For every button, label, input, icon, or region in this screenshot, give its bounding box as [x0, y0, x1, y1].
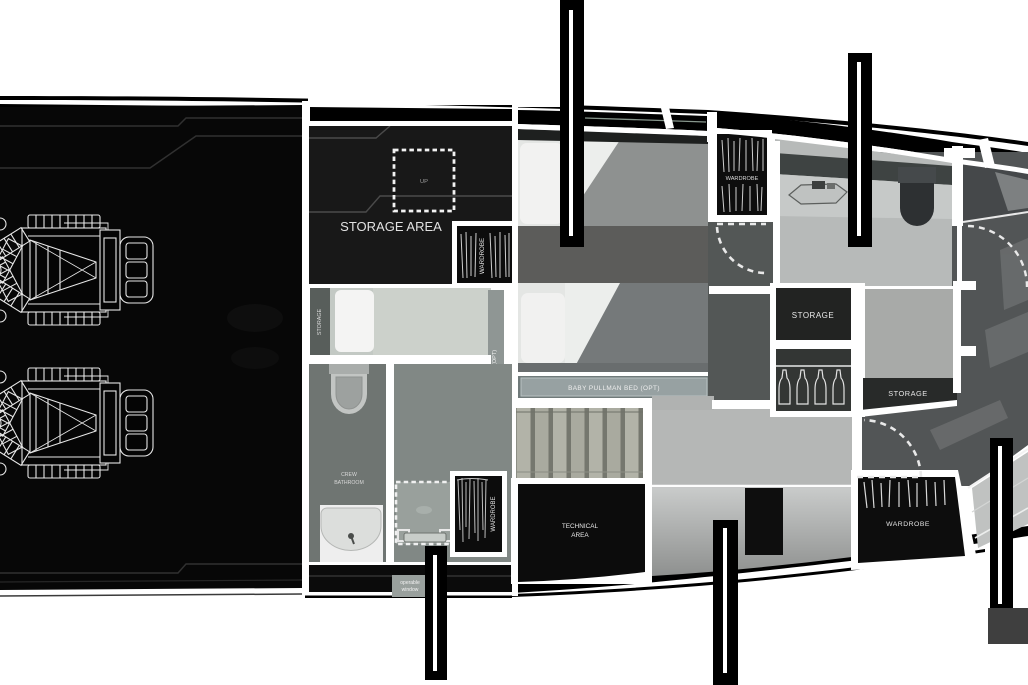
- svg-text:WARDROBE: WARDROBE: [491, 496, 497, 531]
- svg-text:BABY PULLMAN BED (OPT): BABY PULLMAN BED (OPT): [568, 385, 660, 392]
- svg-text:WARDROBE: WARDROBE: [886, 521, 930, 528]
- svg-text:STORAGE: STORAGE: [792, 311, 834, 320]
- svg-text:WARDROBE: WARDROBE: [479, 238, 486, 274]
- svg-text:UP: UP: [420, 179, 428, 185]
- svg-text:operable: operable: [400, 580, 420, 586]
- svg-text:CREW: CREW: [341, 472, 357, 478]
- svg-text:STORAGE: STORAGE: [888, 389, 928, 398]
- svg-text:window: window: [402, 587, 419, 593]
- svg-text:STORAGE AREA: STORAGE AREA: [340, 219, 442, 234]
- svg-text:AREA: AREA: [571, 532, 589, 539]
- svg-text:TECHNICAL: TECHNICAL: [562, 523, 599, 530]
- svg-text:WARDROBE: WARDROBE: [726, 176, 759, 182]
- svg-text:BATHROOM: BATHROOM: [334, 480, 364, 486]
- svg-text:STORAGE: STORAGE: [317, 308, 323, 335]
